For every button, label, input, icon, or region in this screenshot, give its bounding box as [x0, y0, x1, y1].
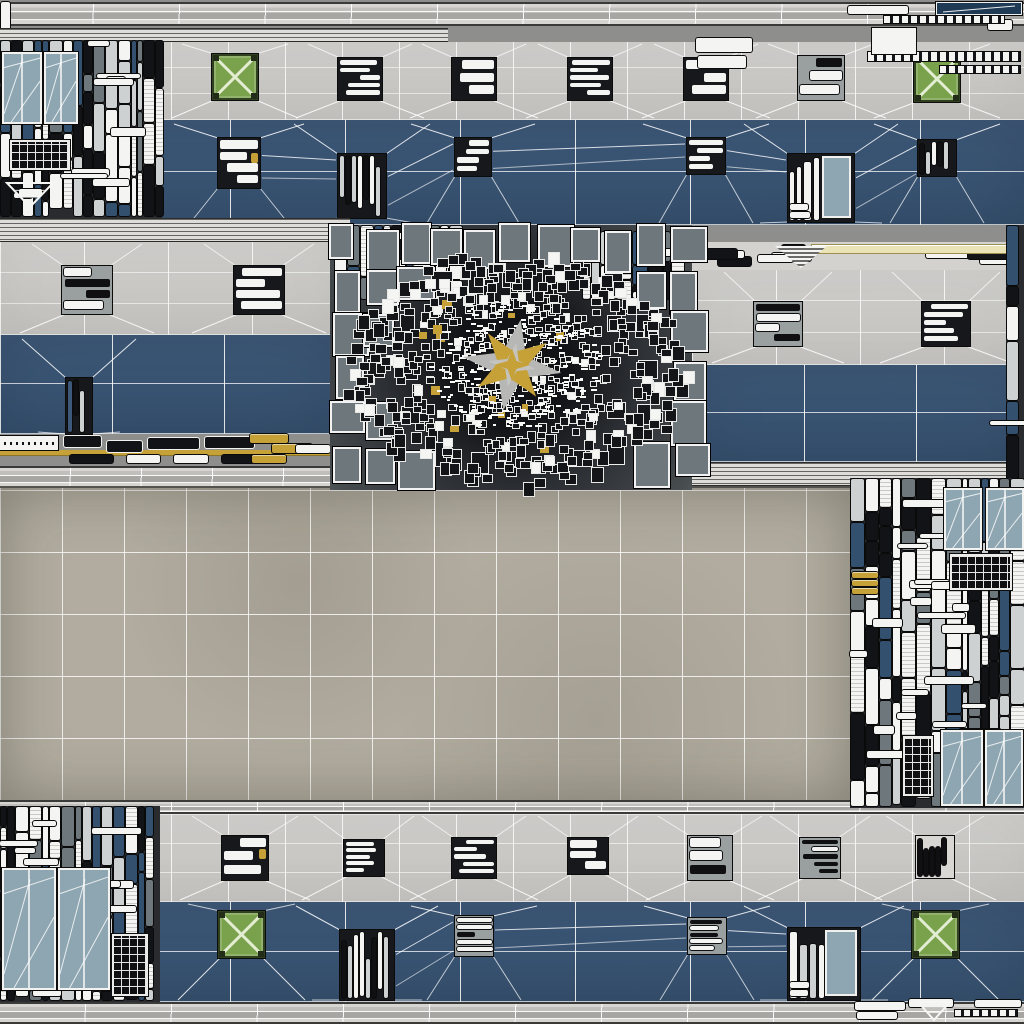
bar [93, 179, 130, 186]
bar [348, 83, 380, 88]
slat [866, 627, 878, 667]
slat [146, 880, 153, 926]
bar [874, 726, 894, 734]
crate-corner [952, 912, 958, 918]
window-texture [2, 868, 56, 990]
crate-corner [258, 912, 264, 918]
bar [469, 85, 494, 94]
slat [947, 649, 961, 669]
slat [932, 142, 936, 165]
far-right-strip [1006, 225, 1024, 487]
slat [1007, 436, 1018, 481]
bar [689, 140, 723, 145]
slat [114, 909, 124, 934]
bar [902, 690, 927, 695]
bar [346, 90, 380, 95]
bar [86, 290, 110, 298]
bar [462, 60, 494, 69]
slat [851, 781, 864, 806]
bar [241, 301, 282, 309]
bar [360, 75, 380, 80]
bar [237, 175, 258, 184]
crate-corner [913, 951, 919, 957]
center-mosaic [330, 225, 692, 490]
triangle-texture [6, 182, 54, 208]
row-pill [296, 445, 330, 453]
texture-patch [62, 266, 112, 314]
slat [924, 849, 928, 876]
slat [346, 156, 350, 204]
texture-patch [800, 838, 840, 878]
top-right-corner-patches [688, 0, 1024, 80]
slat [893, 479, 900, 526]
slat [893, 678, 900, 701]
slat [1011, 606, 1024, 668]
bar [814, 862, 838, 866]
window-wireframe [987, 732, 1021, 804]
bar [911, 598, 931, 604]
slat [866, 479, 878, 511]
mid-left-patch-row [0, 432, 336, 466]
bar [224, 865, 261, 874]
bar [61, 174, 107, 178]
texture-patch [455, 138, 491, 176]
slat [144, 166, 154, 216]
texture-patch [338, 154, 386, 218]
gold-fleck [259, 849, 266, 859]
slat [43, 807, 48, 859]
beam-hairline [0, 475, 336, 476]
bar [0, 841, 37, 847]
slat [348, 946, 352, 998]
bar [340, 60, 377, 65]
row-pill [174, 455, 209, 463]
slat [851, 653, 864, 712]
slat [360, 932, 364, 996]
texture-patch [455, 916, 493, 956]
bar [756, 324, 779, 331]
slat [982, 667, 988, 732]
window-wireframe [46, 54, 76, 122]
bar [690, 838, 720, 847]
bar [690, 946, 714, 950]
bar [111, 128, 145, 136]
bar [690, 939, 722, 943]
bar [803, 854, 838, 858]
dashed-strip [884, 16, 1004, 23]
slat [106, 203, 117, 216]
slat [8, 807, 14, 867]
bar [466, 840, 494, 844]
bar [953, 604, 969, 611]
slat [851, 523, 864, 567]
slat [139, 873, 144, 937]
bar [924, 320, 946, 325]
window-texture [941, 730, 983, 806]
slat [990, 637, 998, 660]
slat [963, 610, 967, 670]
slat [942, 838, 946, 865]
slat [144, 79, 154, 122]
slat [102, 807, 112, 865]
bar [570, 840, 597, 848]
crate-corner [952, 951, 958, 957]
bar [756, 304, 800, 311]
slat [866, 767, 878, 792]
bar [460, 73, 494, 82]
slat [902, 679, 915, 739]
slat [969, 634, 980, 681]
texture-patch [234, 266, 284, 314]
slat [893, 752, 900, 804]
bar [802, 840, 838, 844]
slat [68, 381, 72, 432]
crate-corner [258, 951, 264, 957]
slat [352, 156, 356, 202]
slat [354, 935, 358, 998]
slat [866, 669, 878, 724]
beam-hairline [0, 482, 336, 483]
corner-pill [855, 1002, 905, 1010]
slat [1007, 226, 1018, 285]
bar [850, 651, 867, 657]
dashed-strip [955, 1010, 1017, 1016]
slat [106, 135, 117, 201]
window-wireframe [4, 54, 40, 122]
bar [690, 865, 726, 874]
slat [990, 662, 998, 697]
slat [372, 938, 376, 998]
slat [851, 479, 864, 521]
bar [224, 851, 253, 860]
mid-right-wall [692, 242, 1024, 462]
corner-pill [848, 6, 908, 14]
window-texture [58, 868, 110, 990]
slat [384, 937, 388, 998]
slat [851, 714, 864, 779]
slat [93, 992, 100, 1000]
bottom-left-window-cluster [0, 806, 160, 1002]
gold-fleck [251, 153, 258, 163]
slat [880, 509, 891, 525]
bar [64, 301, 103, 309]
slat [1007, 342, 1018, 400]
bar [220, 140, 258, 149]
bar [690, 920, 722, 924]
slat [902, 552, 915, 599]
supply-crate [218, 911, 265, 958]
bar [933, 722, 966, 727]
slat [144, 41, 154, 77]
slat [83, 807, 91, 860]
slat [1000, 652, 1009, 675]
slat [866, 542, 878, 565]
slat [1, 134, 10, 177]
texture-patch [918, 140, 956, 176]
dashed-strip [940, 66, 1020, 73]
right-window-cluster [850, 478, 1024, 808]
texture-patch [916, 836, 954, 878]
slat [126, 855, 137, 883]
bar [227, 163, 258, 172]
crate-corner [213, 93, 219, 99]
navy-bar-wire [937, 3, 1023, 16]
slat [93, 807, 100, 871]
slat [119, 134, 130, 166]
uv-fan-lines [692, 242, 1024, 462]
slat [50, 842, 60, 858]
slat [918, 839, 922, 876]
texture-patch [788, 928, 860, 1000]
bar [689, 156, 710, 161]
bar [457, 925, 492, 929]
center-star-texture [330, 225, 692, 490]
slat [880, 479, 891, 507]
bar [88, 41, 109, 46]
corner-pill [975, 1000, 1021, 1007]
bar [236, 290, 280, 298]
bar [242, 268, 282, 276]
bar [466, 149, 489, 155]
bar [690, 933, 718, 937]
bar [918, 613, 965, 618]
bar [463, 862, 494, 866]
row-pill [205, 437, 253, 448]
slat [1000, 696, 1009, 715]
window-wireframe [946, 490, 980, 548]
slat [969, 683, 980, 716]
slat [94, 104, 104, 151]
texture-patch [687, 138, 725, 174]
slat [370, 156, 374, 204]
supply-crate [912, 911, 959, 958]
bar [585, 861, 606, 869]
slat [119, 41, 130, 60]
corner-pill [696, 38, 752, 52]
bar [457, 166, 477, 172]
window-texture [2, 52, 42, 124]
bar [220, 152, 247, 161]
texture-patch [568, 58, 612, 100]
slat [893, 528, 900, 558]
texture-patch [754, 302, 802, 346]
bar [33, 821, 56, 825]
texture-patch [452, 838, 496, 878]
slat [364, 156, 368, 199]
window-wireframe [4, 870, 54, 988]
bar [873, 619, 902, 627]
slat [1007, 402, 1018, 434]
mid-left-louver [0, 218, 350, 242]
bar [962, 704, 986, 708]
bar [457, 157, 479, 163]
corner-pill [857, 1012, 897, 1019]
slat [358, 156, 362, 208]
bar [790, 204, 808, 210]
glass-pane [822, 156, 851, 218]
bar [570, 68, 598, 73]
texture-patch [922, 302, 970, 346]
texture-patch [218, 138, 260, 188]
slat [84, 75, 92, 91]
bottom-right-corner-patches [855, 998, 1024, 1024]
bar [454, 854, 486, 858]
bar [346, 861, 374, 865]
bar [587, 90, 610, 95]
slat [84, 93, 92, 124]
slat [156, 157, 163, 185]
navy-bar [936, 2, 1022, 15]
slat [94, 41, 104, 102]
bar [990, 421, 1024, 425]
slat [902, 601, 915, 631]
slat [1011, 670, 1024, 704]
lattice-grille [950, 554, 1012, 590]
slat [944, 142, 948, 169]
bar [925, 677, 973, 684]
crate-corner [953, 95, 959, 101]
slat [866, 513, 878, 540]
slat [917, 479, 930, 536]
bar [689, 164, 713, 169]
bar [942, 625, 976, 633]
window-wireframe [60, 870, 108, 988]
texture-patch [66, 378, 92, 434]
slat [1007, 287, 1018, 305]
bar [459, 869, 494, 873]
slat [880, 578, 891, 639]
bar [236, 279, 265, 287]
mid-left-beam [0, 466, 336, 488]
bar [240, 838, 266, 847]
bar [790, 990, 808, 996]
crate-corner [219, 912, 225, 918]
slat [902, 479, 915, 497]
bar [897, 713, 916, 719]
slat [342, 941, 346, 998]
slat [880, 679, 891, 699]
bar [692, 85, 726, 94]
slat [982, 638, 988, 665]
slat [376, 167, 380, 216]
supply-crate [212, 54, 258, 100]
dashed-box [0, 436, 58, 450]
slat [366, 959, 370, 998]
bar [24, 859, 58, 865]
slat [866, 794, 878, 806]
slat [1, 807, 6, 826]
crate-corner [219, 951, 225, 957]
bar [690, 851, 722, 860]
bar [800, 85, 839, 94]
bar [457, 918, 492, 922]
slat [84, 126, 92, 148]
slat [132, 178, 136, 216]
bar [898, 544, 927, 549]
slat [790, 932, 797, 998]
bar [570, 83, 601, 88]
bar [457, 932, 475, 936]
slat [80, 391, 84, 432]
slat [138, 41, 142, 61]
slat [144, 124, 154, 164]
texture-patch [340, 930, 394, 1000]
slat [926, 152, 930, 174]
window-texture [44, 52, 78, 124]
slat [156, 41, 163, 87]
texture-patch [222, 836, 268, 880]
slat [810, 944, 816, 998]
slat [990, 600, 998, 635]
texture-patch [568, 838, 608, 874]
slat [814, 158, 819, 220]
slat [94, 200, 104, 216]
slat [76, 807, 81, 839]
crate-corner [213, 55, 219, 61]
slat [880, 766, 891, 806]
slat [138, 173, 142, 216]
plaza-floor [0, 486, 852, 801]
slat [851, 612, 864, 651]
bar [346, 855, 370, 859]
corner-pill [698, 56, 746, 68]
gold-bar [252, 455, 286, 463]
bar [346, 842, 374, 846]
slat [938, 142, 942, 166]
slat [893, 560, 900, 608]
slat [920, 144, 924, 174]
bar [924, 336, 958, 341]
texture-patch [788, 154, 854, 222]
texture-patch [338, 58, 382, 100]
gold-bar [250, 434, 288, 443]
window-texture [986, 488, 1024, 550]
slat [139, 853, 144, 871]
texture-atlas [0, 0, 1024, 1024]
bar [340, 68, 370, 73]
slat [1000, 588, 1009, 650]
bar [812, 847, 838, 851]
glass-pane [825, 930, 857, 996]
bar [94, 79, 133, 85]
slat [340, 156, 344, 197]
bar [570, 851, 596, 859]
bar [346, 868, 364, 872]
crate-corner [913, 912, 919, 918]
lattice-grille [10, 140, 70, 170]
slat [880, 527, 891, 552]
bar [15, 848, 35, 852]
slat [132, 81, 136, 126]
row-pill [148, 438, 200, 449]
lattice-grille [112, 934, 148, 996]
slat [936, 847, 940, 876]
slat [819, 945, 824, 998]
triangle-texture [917, 1001, 951, 1021]
texture-patch [452, 58, 496, 100]
triangle-wireframe [917, 1001, 951, 1021]
texture-patch [688, 918, 726, 954]
slat [16, 807, 28, 831]
bar [65, 279, 110, 287]
slat [893, 703, 900, 750]
bar [690, 926, 718, 930]
bar [924, 312, 963, 317]
slat [74, 157, 82, 216]
row-pill [70, 455, 113, 463]
row-pill [127, 455, 159, 463]
slat [74, 380, 78, 415]
